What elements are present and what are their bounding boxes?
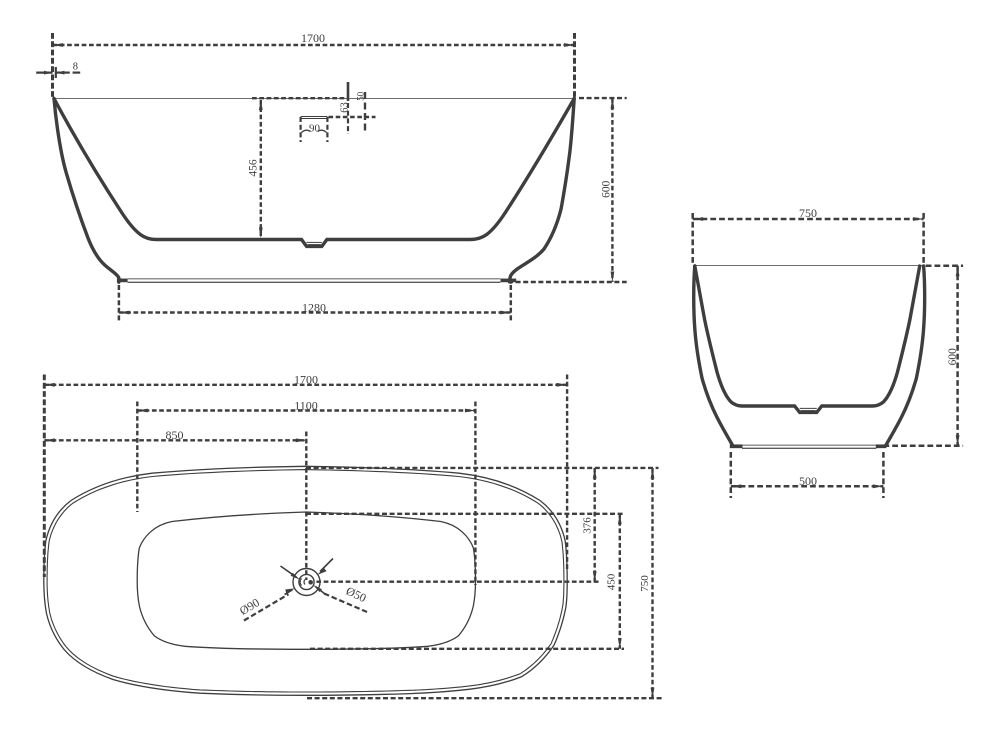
svg-text:63: 63 [339,102,350,113]
svg-text:8: 8 [73,62,78,73]
svg-text:1700: 1700 [301,31,325,45]
svg-text:750: 750 [799,206,817,220]
svg-text:1280: 1280 [302,300,326,314]
svg-text:50: 50 [356,91,366,101]
svg-text:600: 600 [601,180,613,198]
svg-text:456: 456 [248,159,260,177]
svg-text:850: 850 [166,428,184,442]
svg-text:450: 450 [606,573,618,590]
svg-text:376: 376 [582,517,594,534]
svg-text:90: 90 [309,123,321,135]
svg-text:600: 600 [947,348,959,366]
svg-text:750: 750 [639,575,651,592]
svg-text:500: 500 [799,474,817,488]
svg-text:1100: 1100 [294,399,318,413]
svg-text:1700: 1700 [294,373,318,387]
